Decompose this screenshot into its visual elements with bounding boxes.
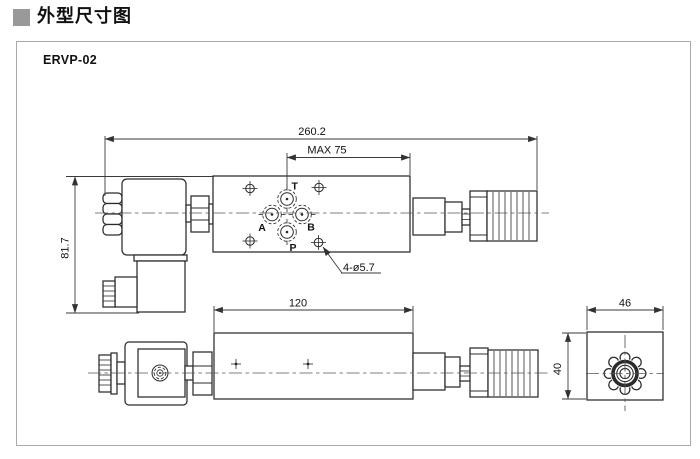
override-knurl [103,193,122,235]
catalog-page: 外型尺寸图 ERVP-02 [0,0,700,459]
dim-body-length: 120 [214,298,413,333]
coil-nut-bottom [193,352,212,395]
valve-body-bottom [214,333,413,399]
svg-text:260.2: 260.2 [298,126,326,138]
svg-text:MAX 75: MAX 75 [307,145,346,157]
svg-text:46: 46 [619,298,631,310]
solenoid-coil-bottom [125,342,187,405]
svg-text:4-ø5.7: 4-ø5.7 [343,262,375,274]
dim-end-height: 40 [552,333,586,399]
bottom-view [88,333,549,405]
svg-text:120: 120 [289,298,307,310]
coil-tube [186,205,191,222]
end-view [586,332,664,411]
port-label-a: A [258,222,266,234]
adjust-knob-assembly-bottom [413,348,538,397]
solenoid-coil [122,179,186,255]
port-label-b: B [307,222,315,234]
override-knurl-bottom [99,353,125,394]
svg-text:40: 40 [552,363,564,375]
knurled-knob-bottom [488,350,538,397]
dimension-drawing: 260.2 MAX 75 81.7 4-ø5.7 [0,0,700,459]
dim-end-width: 46 [587,298,663,331]
din-connector [103,255,187,312]
adjust-knob-assembly [413,191,537,241]
port-label-t: T [292,181,299,193]
knurled-knob [487,191,537,241]
port-label-p: P [289,242,296,254]
top-view [95,176,549,312]
svg-text:81.7: 81.7 [60,237,72,258]
coil-nut [191,196,213,232]
